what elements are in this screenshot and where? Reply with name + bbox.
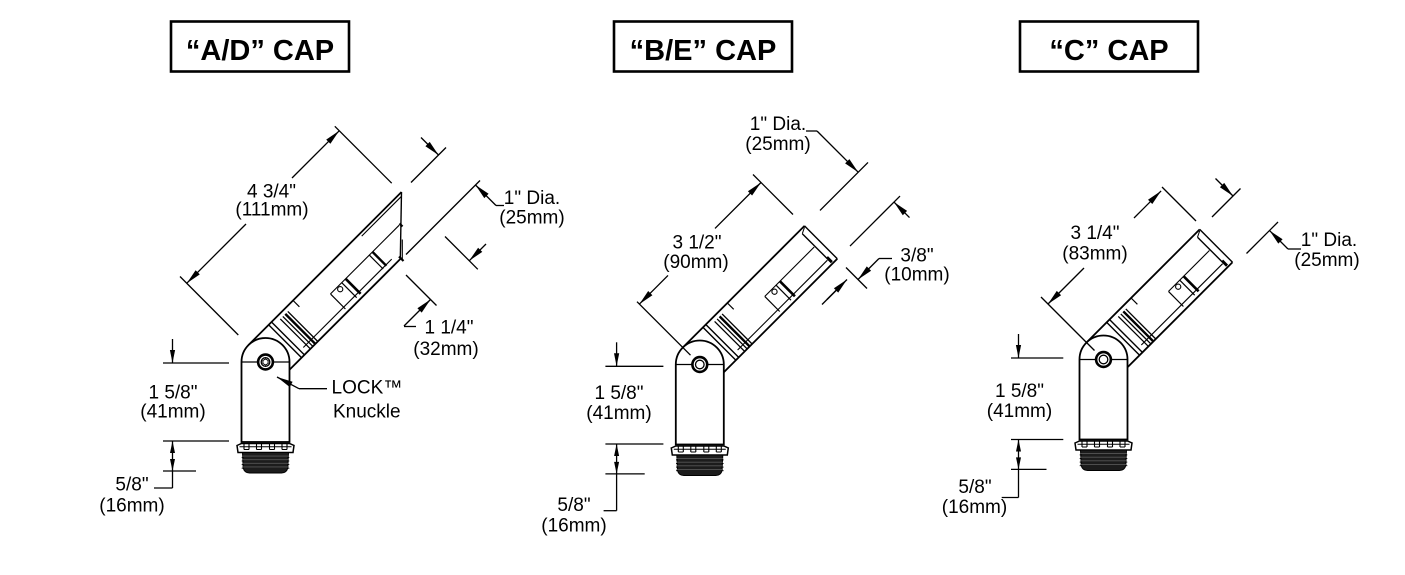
svg-text:1" Dia.: 1" Dia.: [504, 188, 560, 209]
svg-text:1 5/8": 1 5/8": [594, 383, 643, 404]
svg-text:5/8": 5/8": [557, 495, 590, 516]
svg-text:(83mm): (83mm): [1062, 244, 1127, 265]
svg-text:3/8": 3/8": [900, 246, 933, 267]
svg-text:5/8": 5/8": [958, 477, 991, 498]
svg-text:LOCK™: LOCK™: [332, 378, 403, 399]
svg-text:(90mm): (90mm): [663, 252, 728, 273]
svg-text:5/8": 5/8": [115, 475, 148, 496]
svg-text:(41mm): (41mm): [140, 402, 205, 423]
svg-text:(25mm): (25mm): [499, 208, 564, 229]
svg-text:(16mm): (16mm): [942, 497, 1007, 518]
svg-text:1 5/8": 1 5/8": [995, 381, 1044, 402]
svg-text:1" Dia.: 1" Dia.: [1301, 230, 1357, 251]
svg-text:(16mm): (16mm): [541, 516, 606, 537]
svg-text:(10mm): (10mm): [884, 265, 949, 286]
svg-text:Knuckle: Knuckle: [333, 402, 401, 423]
svg-text:“B/E” CAP: “B/E” CAP: [630, 35, 777, 67]
svg-text:(25mm): (25mm): [745, 134, 810, 155]
svg-text:3 1/2": 3 1/2": [672, 233, 721, 254]
svg-text:1 5/8": 1 5/8": [148, 383, 197, 404]
svg-text:(32mm): (32mm): [413, 339, 478, 360]
svg-text:“C” CAP: “C” CAP: [1049, 35, 1168, 67]
svg-text:“A/D” CAP: “A/D” CAP: [186, 35, 334, 67]
svg-text:1" Dia.: 1" Dia.: [750, 114, 806, 135]
svg-text:(41mm): (41mm): [586, 403, 651, 424]
svg-text:(16mm): (16mm): [99, 496, 164, 517]
svg-text:1 1/4": 1 1/4": [424, 318, 473, 339]
svg-text:(25mm): (25mm): [1294, 250, 1359, 271]
svg-text:3 1/4": 3 1/4": [1070, 223, 1119, 244]
svg-text:(41mm): (41mm): [987, 401, 1052, 422]
svg-text:(111mm): (111mm): [235, 200, 308, 221]
